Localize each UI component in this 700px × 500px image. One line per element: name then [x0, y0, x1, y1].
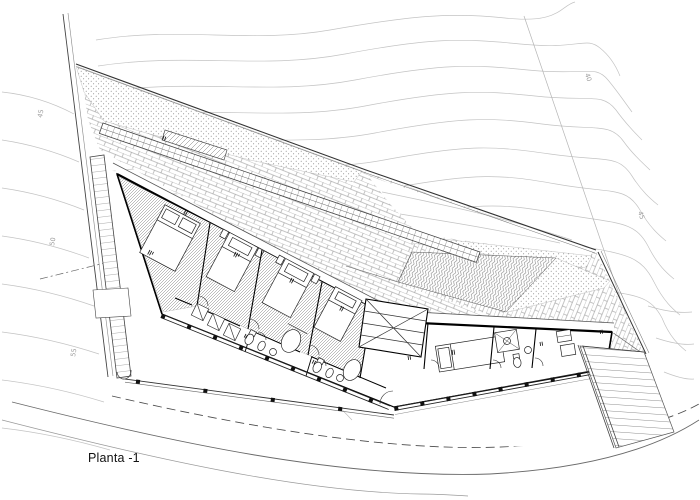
elevation-label: 45	[36, 109, 45, 119]
bend-stair	[359, 299, 428, 357]
appliance	[556, 329, 572, 342]
elevation-label: 55	[69, 348, 78, 358]
floor-plan-drawing: 4550554045	[0, 0, 700, 500]
plan-title: Planta -1	[88, 451, 140, 465]
sink	[270, 349, 277, 356]
sink	[337, 375, 344, 382]
drawing-sheet: 4550554045 Planta -1	[0, 0, 700, 500]
elevation-label: 45	[636, 210, 646, 220]
road-outer-edge	[2, 420, 468, 496]
elevation-label: 40	[583, 72, 593, 82]
shower	[495, 329, 520, 352]
stair-landing	[93, 288, 131, 318]
elevation-label: 50	[48, 237, 57, 247]
appliance	[560, 343, 576, 356]
sink	[525, 347, 532, 354]
